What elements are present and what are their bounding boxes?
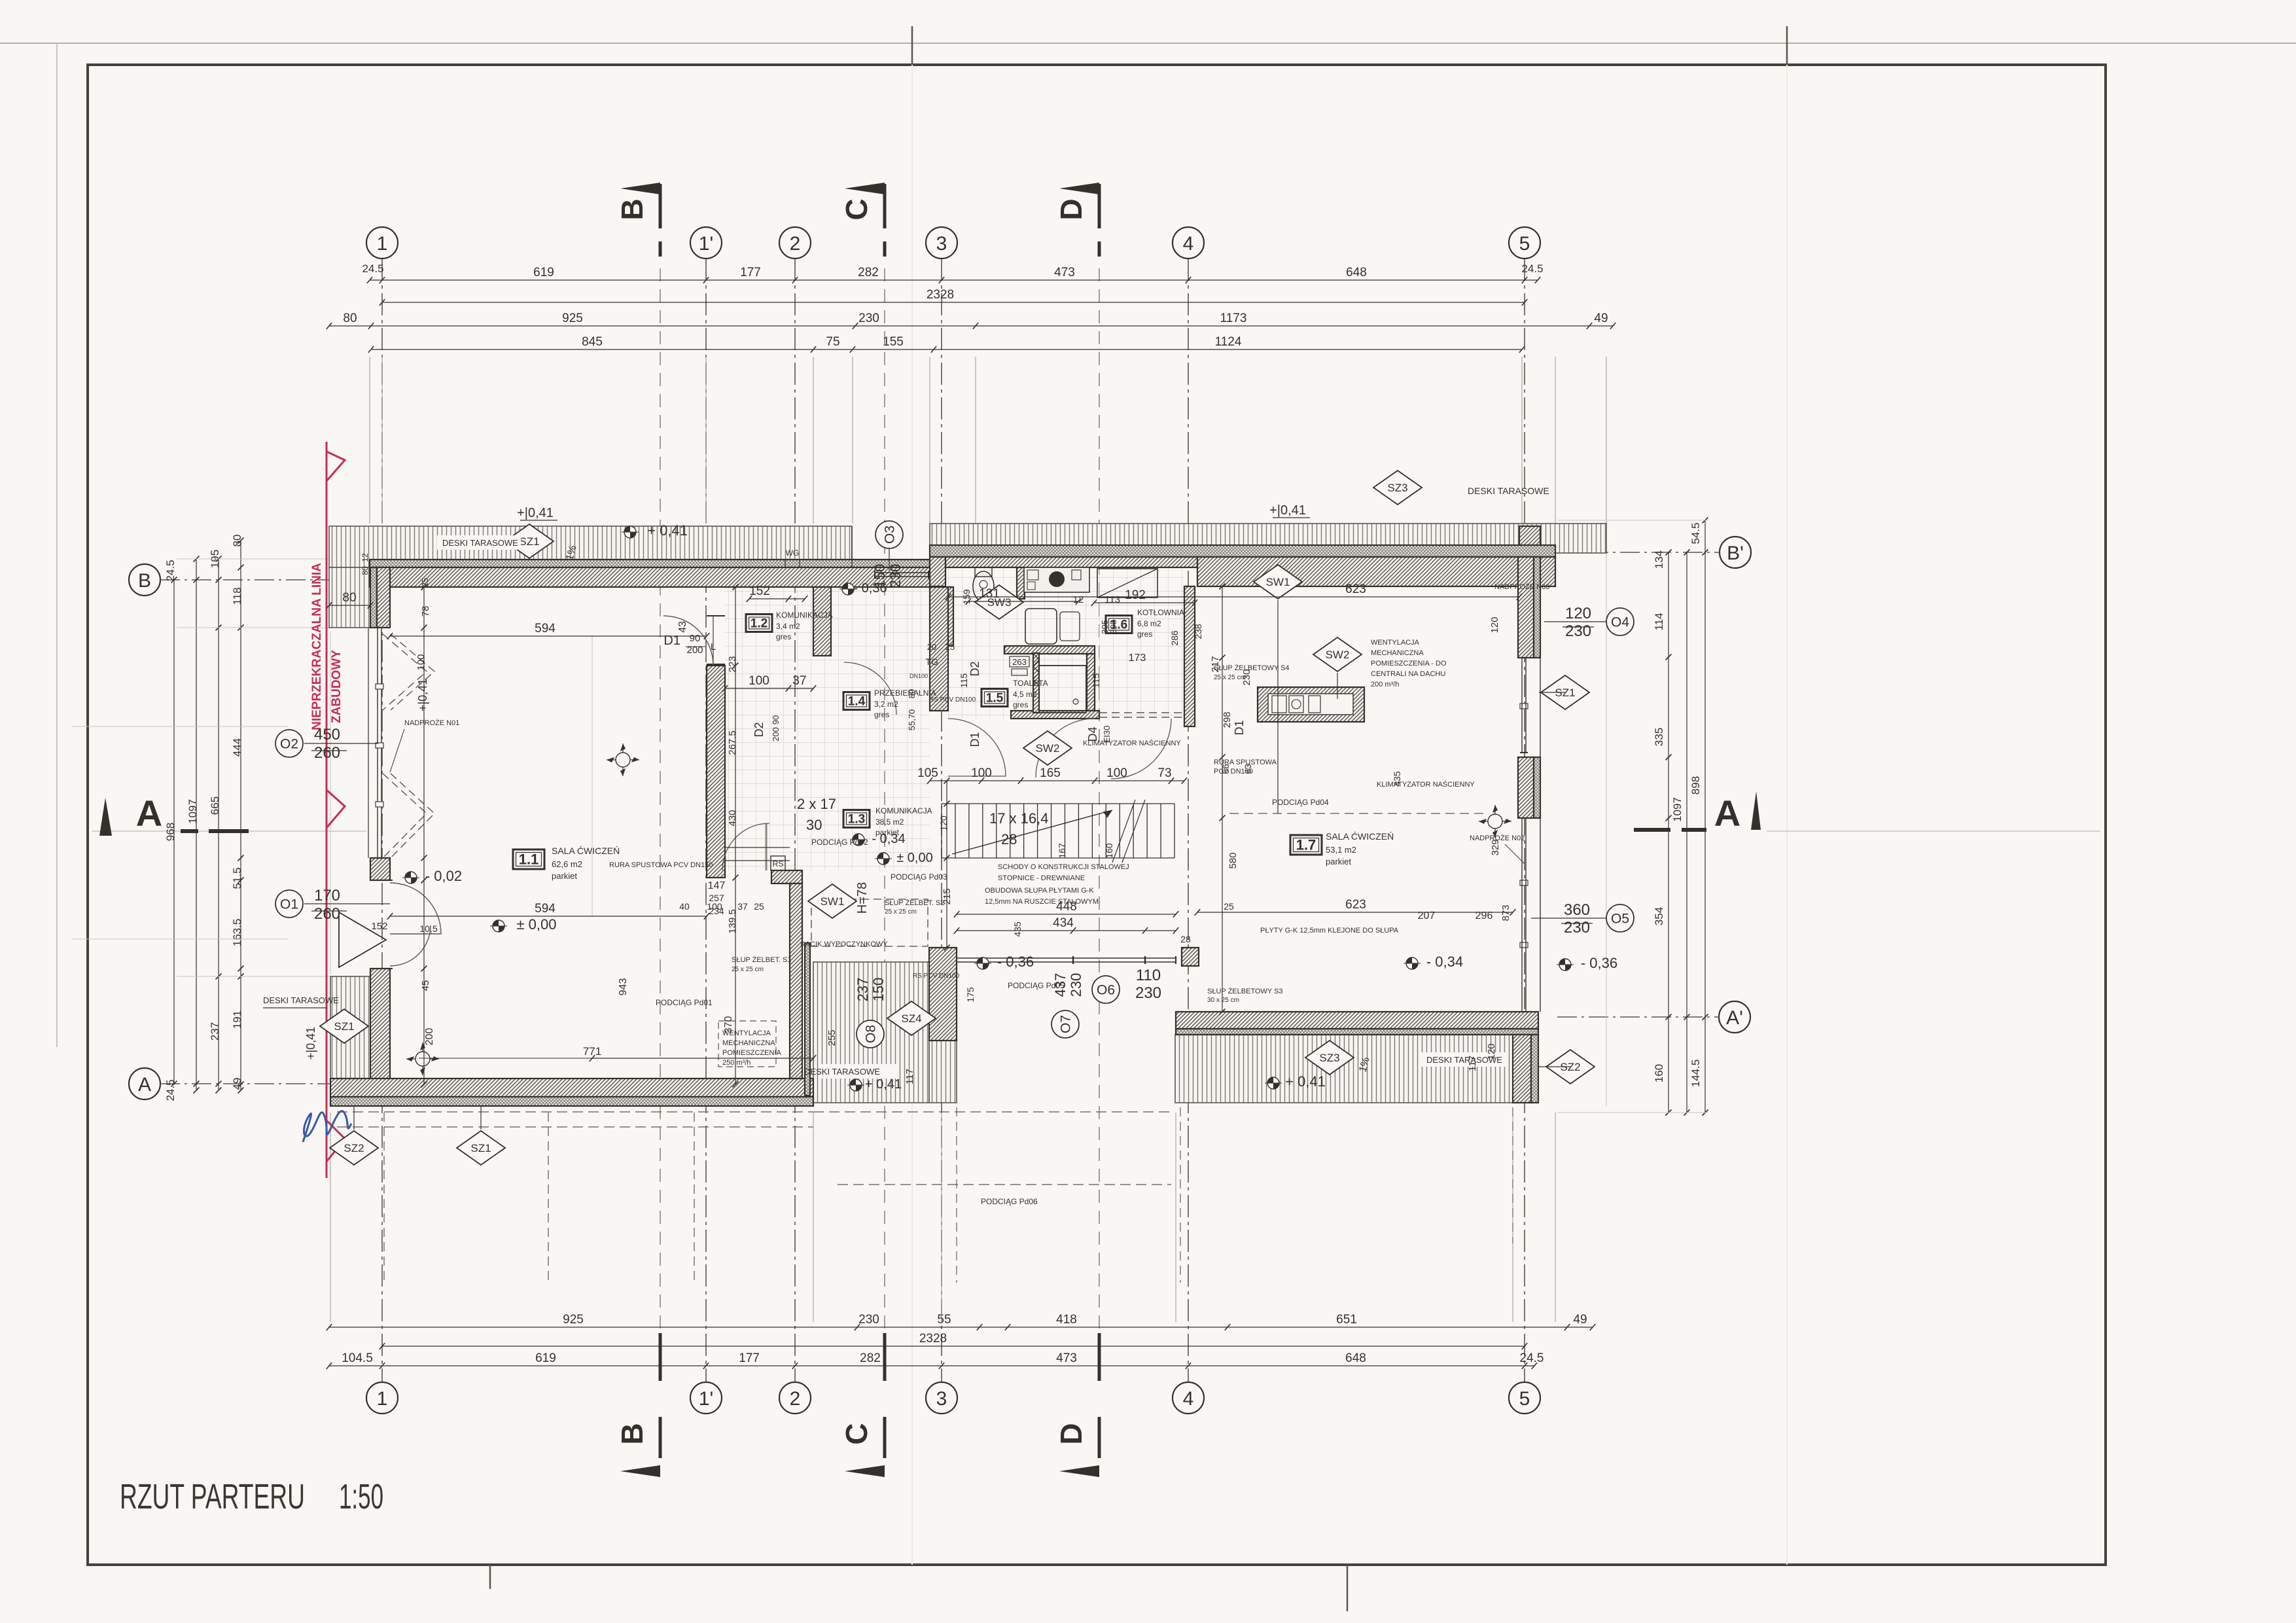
svg-text:175: 175 <box>965 987 976 1003</box>
svg-text:37: 37 <box>792 674 806 688</box>
svg-text:234: 234 <box>709 906 724 916</box>
svg-text:SZ3: SZ3 <box>1319 1052 1339 1064</box>
svg-text:SŁUP ŻELBETOWY S3: SŁUP ŻELBETOWY S3 <box>1207 987 1283 995</box>
svg-text:ZABUDOWY: ZABUDOWY <box>330 650 344 723</box>
svg-text:EI30: EI30 <box>1102 726 1112 743</box>
svg-text:2 x 17: 2 x 17 <box>797 796 836 812</box>
svg-text:230: 230 <box>1068 973 1084 997</box>
svg-text:SW2: SW2 <box>1036 742 1060 755</box>
svg-text:298: 298 <box>1222 711 1233 728</box>
svg-text:430: 430 <box>727 810 738 826</box>
svg-text:120: 120 <box>938 815 949 831</box>
svg-text:parkiet: parkiet <box>552 871 577 881</box>
svg-text:360: 360 <box>1564 901 1590 919</box>
svg-text:308: 308 <box>1108 620 1118 634</box>
svg-text:WG: WG <box>786 548 800 558</box>
svg-text:RS PCV DN100: RS PCV DN100 <box>913 972 960 980</box>
svg-text:335: 335 <box>1653 728 1665 746</box>
svg-text:167: 167 <box>1057 843 1067 859</box>
svg-text:78: 78 <box>420 606 431 617</box>
svg-text:PODCIĄG Pd06: PODCIĄG Pd06 <box>981 1197 1038 1206</box>
svg-text:5: 5 <box>1519 233 1530 255</box>
svg-text:POMIESZCZENIA - DO: POMIESZCZENIA - DO <box>1371 660 1447 668</box>
svg-text:925: 925 <box>562 312 583 325</box>
svg-text:117: 117 <box>1467 1056 1478 1071</box>
svg-text:10,5: 10,5 <box>419 923 437 934</box>
svg-text:SW1: SW1 <box>1266 576 1290 588</box>
svg-text:KĄCIK WYPOCZYNKOWY: KĄCIK WYPOCZYNKOWY <box>800 940 888 948</box>
svg-text:D1: D1 <box>1233 720 1246 735</box>
svg-text:KOMUNIKACJA: KOMUNIKACJA <box>776 611 833 620</box>
svg-text:62,6 m2: 62,6 m2 <box>552 859 582 869</box>
svg-text:D1: D1 <box>663 633 680 648</box>
svg-text:968: 968 <box>164 823 177 841</box>
svg-text:110: 110 <box>1136 967 1161 984</box>
svg-text:354: 354 <box>1653 907 1665 925</box>
svg-text:238: 238 <box>1193 624 1203 639</box>
svg-text:38,5 m2: 38,5 m2 <box>875 817 904 827</box>
svg-text:51.5: 51.5 <box>231 867 243 889</box>
svg-text:SZ3: SZ3 <box>1387 482 1407 494</box>
svg-text:165: 165 <box>1040 766 1061 780</box>
svg-text:O2: O2 <box>280 737 298 752</box>
svg-text:237: 237 <box>855 978 871 1002</box>
svg-text:O6: O6 <box>1097 983 1115 998</box>
svg-text:12: 12 <box>361 553 370 562</box>
svg-text:115: 115 <box>1091 673 1101 688</box>
svg-text:C: C <box>839 198 874 220</box>
svg-text:3,4 m2: 3,4 m2 <box>776 622 800 631</box>
svg-text:L: L <box>711 641 716 652</box>
svg-text:80: 80 <box>231 535 243 547</box>
svg-text:448: 448 <box>1056 900 1077 914</box>
svg-text:53,1 m2: 53,1 m2 <box>1326 845 1356 855</box>
svg-text:RS: RS <box>773 859 784 868</box>
svg-text:117: 117 <box>904 1069 915 1084</box>
svg-text:473: 473 <box>1054 266 1075 279</box>
svg-text:619: 619 <box>535 1351 556 1365</box>
svg-text:H=78: H=78 <box>855 882 870 914</box>
svg-text:230: 230 <box>1565 622 1591 640</box>
svg-text:B: B <box>615 1423 649 1444</box>
svg-text:296: 296 <box>1475 910 1493 921</box>
svg-text:2: 2 <box>790 1388 801 1410</box>
svg-text:A: A <box>1714 793 1740 834</box>
svg-text:12: 12 <box>1073 594 1084 605</box>
svg-text:C: C <box>839 1423 874 1444</box>
svg-text:80: 80 <box>361 566 370 575</box>
svg-text:263: 263 <box>1012 657 1027 667</box>
svg-text:173: 173 <box>1129 652 1146 664</box>
svg-text:651: 651 <box>1336 1313 1357 1327</box>
svg-text:SZ2: SZ2 <box>344 1142 364 1154</box>
svg-text:SCHODY O KONSTRUKCJI STALOWEJ: SCHODY O KONSTRUKCJI STALOWEJ <box>998 863 1129 871</box>
svg-text:SW1: SW1 <box>821 895 845 908</box>
svg-text:NIEPRZEKRACZALNA LINIA: NIEPRZEKRACZALNA LINIA <box>310 563 324 730</box>
svg-text:100: 100 <box>971 766 992 780</box>
svg-text:+ 0,41: + 0,41 <box>865 1077 902 1092</box>
svg-text:O4: O4 <box>1611 615 1629 630</box>
svg-text:580: 580 <box>1227 852 1239 868</box>
svg-text:286: 286 <box>1169 630 1180 646</box>
svg-text:120: 120 <box>1486 1043 1497 1060</box>
svg-text:4: 4 <box>1183 1388 1194 1410</box>
svg-text:49: 49 <box>231 1078 243 1090</box>
svg-text:434: 434 <box>1053 916 1074 930</box>
svg-text:623: 623 <box>1345 898 1366 912</box>
svg-text:3: 3 <box>936 233 947 255</box>
svg-text:parkiet: parkiet <box>875 828 900 837</box>
svg-text:A: A <box>138 1074 151 1096</box>
svg-text:STOPNICE - DREWNIANE: STOPNICE - DREWNIANE <box>998 874 1085 882</box>
svg-text:113: 113 <box>1104 594 1120 605</box>
svg-text:DESKI TARASOWE: DESKI TARASOWE <box>1468 486 1549 496</box>
svg-text:594: 594 <box>535 622 556 635</box>
svg-text:80: 80 <box>343 312 357 325</box>
svg-text:159: 159 <box>961 589 972 605</box>
svg-text:329: 329 <box>1490 839 1501 855</box>
svg-text:1: 1 <box>377 1388 388 1410</box>
svg-text:25: 25 <box>945 642 955 652</box>
svg-text:TG: TG <box>925 656 938 667</box>
svg-text:80: 80 <box>342 591 356 605</box>
svg-text:90: 90 <box>690 633 701 644</box>
svg-text:49: 49 <box>1573 1313 1587 1327</box>
svg-text:152: 152 <box>749 584 770 598</box>
svg-text:230: 230 <box>1241 669 1252 685</box>
svg-text:450: 450 <box>314 726 340 743</box>
svg-text:267.5: 267.5 <box>727 730 738 755</box>
svg-text:898: 898 <box>1689 776 1702 794</box>
svg-text:160: 160 <box>1104 843 1114 859</box>
svg-text:147: 147 <box>708 880 726 891</box>
svg-text:SZ1: SZ1 <box>470 1142 491 1154</box>
svg-text:255: 255 <box>826 1029 838 1046</box>
svg-text:40: 40 <box>679 901 690 912</box>
svg-text:B': B' <box>1727 543 1744 564</box>
svg-text:+ 0,41: + 0,41 <box>647 522 688 539</box>
svg-text:619: 619 <box>533 266 554 279</box>
svg-text:24.5: 24.5 <box>164 560 177 581</box>
svg-text:POMIESZCZENIA: POMIESZCZENIA <box>722 1049 782 1057</box>
svg-text:D2: D2 <box>968 661 981 676</box>
svg-text:NADPROŻE N01: NADPROŻE N01 <box>404 719 459 727</box>
svg-text:PODCIĄG Pd02: PODCIĄG Pd02 <box>811 838 868 847</box>
svg-text:56: 56 <box>1220 764 1231 774</box>
svg-text:SŁUP ŻELBET. S1: SŁUP ŻELBET. S1 <box>732 955 792 964</box>
svg-text:PODCIĄG Pd04: PODCIĄG Pd04 <box>1272 798 1329 807</box>
svg-text:100: 100 <box>415 654 427 670</box>
svg-text:+|0,41: +|0,41 <box>517 506 554 520</box>
svg-text:55,70: 55,70 <box>907 709 917 731</box>
svg-text:28: 28 <box>1001 831 1017 847</box>
svg-text:O5: O5 <box>1611 912 1629 927</box>
svg-text:163.5: 163.5 <box>231 919 243 947</box>
svg-text:PŁYTY G-K 12,5mm KLEJONE DO SŁ: PŁYTY G-K 12,5mm KLEJONE DO SŁUPA <box>1260 927 1399 935</box>
svg-text:WENTYLACJA: WENTYLACJA <box>1371 639 1420 647</box>
svg-text:RZUT PARTERU: RZUT PARTERU <box>120 1477 305 1516</box>
svg-text:4: 4 <box>1183 233 1194 255</box>
svg-text:24.5: 24.5 <box>362 262 383 275</box>
svg-text:118: 118 <box>231 587 243 605</box>
svg-text:160: 160 <box>1653 1064 1665 1082</box>
svg-text:115: 115 <box>959 673 969 688</box>
svg-text:925: 925 <box>563 1313 584 1327</box>
svg-text:O3: O3 <box>883 526 898 544</box>
svg-text:KOMUNIKACJA: KOMUNIKACJA <box>875 806 932 815</box>
svg-text:± 0,00: ± 0,00 <box>516 916 556 933</box>
svg-text:144.5: 144.5 <box>1689 1060 1702 1088</box>
svg-text:230: 230 <box>1135 984 1161 1002</box>
svg-text:1.1: 1.1 <box>519 851 539 868</box>
svg-text:177: 177 <box>740 266 761 279</box>
svg-text:DESKI TARASOWE: DESKI TARASOWE <box>442 538 518 548</box>
svg-text:SZ1: SZ1 <box>519 535 539 548</box>
svg-text:594: 594 <box>535 902 556 916</box>
svg-text:134: 134 <box>1653 550 1665 569</box>
svg-text:648: 648 <box>1346 266 1367 279</box>
svg-text:25: 25 <box>754 901 764 912</box>
svg-text:260: 260 <box>314 744 340 762</box>
svg-text:PODCIĄG Pd01: PODCIĄG Pd01 <box>656 998 713 1007</box>
svg-text:A: A <box>136 793 162 834</box>
svg-text:D2: D2 <box>752 722 766 737</box>
svg-text:1:50: 1:50 <box>339 1477 383 1516</box>
svg-text:SALA ĆWICZEŃ: SALA ĆWICZEŃ <box>552 846 620 856</box>
svg-text:± 0,00: ± 0,00 <box>896 851 932 865</box>
svg-text:139.5: 139.5 <box>727 909 738 934</box>
svg-text:55: 55 <box>937 1313 951 1327</box>
svg-text:1.5: 1.5 <box>986 692 1004 705</box>
svg-text:D: D <box>1054 198 1088 220</box>
svg-text:665: 665 <box>209 796 221 815</box>
svg-text:- 0,02: - 0,02 <box>425 868 462 884</box>
svg-text:1.3: 1.3 <box>848 813 865 827</box>
svg-text:- 0,36: - 0,36 <box>997 954 1034 970</box>
svg-text:SZ4: SZ4 <box>901 1012 921 1025</box>
svg-text:2328: 2328 <box>927 288 954 302</box>
svg-text:1.4: 1.4 <box>848 695 866 709</box>
svg-text:370: 370 <box>723 1016 734 1034</box>
svg-text:63: 63 <box>1243 764 1253 774</box>
svg-text:SŁUP ŻELBET. S2: SŁUP ŻELBET. S2 <box>885 899 945 907</box>
svg-text:1.2: 1.2 <box>751 617 768 631</box>
svg-text:1': 1' <box>699 233 713 255</box>
svg-text:PODCIĄG Pd03: PODCIĄG Pd03 <box>891 872 947 882</box>
svg-text:237: 237 <box>209 1022 221 1041</box>
svg-text:200: 200 <box>771 727 781 741</box>
svg-text:215: 215 <box>942 888 953 904</box>
svg-text:- 0,36: - 0,36 <box>1581 955 1617 971</box>
svg-text:170: 170 <box>314 887 340 904</box>
svg-text:25: 25 <box>1224 901 1234 912</box>
svg-text:230: 230 <box>858 312 879 325</box>
svg-text:54.5: 54.5 <box>1689 522 1702 544</box>
svg-text:O8: O8 <box>864 1025 879 1043</box>
svg-text:SALA ĆWICZEŃ: SALA ĆWICZEŃ <box>1326 831 1394 842</box>
svg-text:PRZEBIERALNIA: PRZEBIERALNIA <box>874 688 936 698</box>
svg-text:192: 192 <box>1125 588 1146 602</box>
svg-text:200 m³/h: 200 m³/h <box>1371 681 1399 688</box>
svg-text:SZ2: SZ2 <box>1560 1061 1580 1073</box>
svg-text:1097: 1097 <box>186 799 199 824</box>
svg-text:282: 282 <box>858 266 879 279</box>
svg-text:DESKI TARASOWE: DESKI TARASOWE <box>263 995 339 1005</box>
svg-text:104.5: 104.5 <box>342 1351 373 1365</box>
svg-text:30: 30 <box>806 817 822 833</box>
svg-text:80: 80 <box>907 689 917 698</box>
svg-text:1': 1' <box>699 1388 713 1410</box>
svg-text:DESKI TARASOWE: DESKI TARASOWE <box>804 1067 880 1077</box>
svg-text:25 x 25 cm: 25 x 25 cm <box>885 908 917 916</box>
svg-text:100: 100 <box>749 674 769 688</box>
svg-text:PODCIĄG Pd05: PODCIĄG Pd05 <box>1008 981 1065 990</box>
svg-text:CENTRALI NA DACHU: CENTRALI NA DACHU <box>1371 670 1445 678</box>
svg-text:45: 45 <box>420 980 431 991</box>
svg-text:435: 435 <box>1392 771 1402 787</box>
svg-text:473: 473 <box>1056 1351 1077 1365</box>
svg-text:623: 623 <box>1345 582 1366 596</box>
svg-text:207: 207 <box>1418 910 1436 921</box>
svg-text:257: 257 <box>709 893 724 903</box>
svg-text:gres: gres <box>1013 700 1028 709</box>
svg-text:49: 49 <box>1594 312 1608 325</box>
svg-text:155: 155 <box>883 335 904 349</box>
svg-text:260: 260 <box>314 905 340 923</box>
svg-text:MECHANICZNA: MECHANICZNA <box>722 1039 775 1047</box>
svg-text:24.5: 24.5 <box>164 1079 177 1101</box>
svg-text:282: 282 <box>860 1351 881 1365</box>
svg-text:+|0,41: +|0,41 <box>304 1027 317 1060</box>
svg-text:250 m³/h: 250 m³/h <box>722 1059 751 1067</box>
svg-text:2: 2 <box>790 233 801 255</box>
svg-text:191: 191 <box>231 1010 243 1029</box>
svg-text:152: 152 <box>371 921 387 932</box>
svg-text:20: 20 <box>927 642 936 652</box>
svg-text:230: 230 <box>887 564 904 588</box>
svg-text:17 x 16,4: 17 x 16,4 <box>989 810 1049 827</box>
svg-text:SZ1: SZ1 <box>1555 687 1575 699</box>
svg-text:MECHANICZNA: MECHANICZNA <box>1371 649 1424 657</box>
svg-text:D4: D4 <box>1086 726 1099 741</box>
svg-text:1.7: 1.7 <box>1296 837 1316 853</box>
svg-text:200: 200 <box>424 1028 435 1046</box>
svg-text:120: 120 <box>1565 605 1591 622</box>
svg-text:DN100: DN100 <box>910 673 928 679</box>
svg-text:2328: 2328 <box>919 1332 947 1346</box>
svg-text:75: 75 <box>826 335 839 349</box>
svg-text:1097: 1097 <box>1671 797 1684 822</box>
svg-text:6,8 m2: 6,8 m2 <box>1137 619 1161 628</box>
svg-text:1173: 1173 <box>1220 312 1247 325</box>
svg-text:gres: gres <box>874 710 889 719</box>
svg-text:90: 90 <box>771 715 781 724</box>
svg-text:SZ1: SZ1 <box>334 1020 354 1033</box>
svg-text:177: 177 <box>739 1351 760 1365</box>
svg-text:KOTŁOWNIA: KOTŁOWNIA <box>1137 608 1184 617</box>
svg-text:105: 105 <box>917 766 938 780</box>
svg-text:parkiet: parkiet <box>1326 857 1351 866</box>
svg-text:100: 100 <box>1106 766 1127 780</box>
svg-text:D: D <box>1054 1423 1088 1444</box>
svg-text:5: 5 <box>1519 1388 1530 1410</box>
svg-text:114: 114 <box>1653 613 1665 630</box>
svg-text:230: 230 <box>1564 919 1590 936</box>
svg-text:24.5: 24.5 <box>1521 262 1543 275</box>
svg-text:SW2: SW2 <box>1326 649 1350 661</box>
svg-text:648: 648 <box>1345 1351 1366 1365</box>
svg-text:943: 943 <box>618 978 629 996</box>
svg-text:RURA SPUSTOWA PCV DN150: RURA SPUSTOWA PCV DN150 <box>609 861 713 869</box>
svg-text:150: 150 <box>872 564 888 588</box>
svg-text:- 0,34: - 0,34 <box>1426 954 1463 970</box>
svg-text:120: 120 <box>1489 616 1500 633</box>
svg-text:845: 845 <box>582 335 603 349</box>
svg-text:NADPROŻE N03: NADPROŻE N03 <box>1494 582 1549 591</box>
svg-text:30 x 25 cm: 30 x 25 cm <box>1207 997 1239 1004</box>
svg-text:+|0,41: +|0,41 <box>416 679 429 711</box>
svg-text:+|0,41: +|0,41 <box>1269 503 1306 518</box>
svg-text:B: B <box>615 198 649 220</box>
svg-text:O7: O7 <box>1059 1015 1074 1033</box>
svg-text:12,5mm NA RUSZCIE STALOWYM: 12,5mm NA RUSZCIE STALOWYM <box>985 898 1099 906</box>
svg-text:24.5: 24.5 <box>1520 1351 1544 1365</box>
svg-text:3,2 m2: 3,2 m2 <box>874 700 898 709</box>
svg-text:771: 771 <box>583 1045 601 1058</box>
svg-text:223: 223 <box>727 656 738 672</box>
svg-text:25: 25 <box>420 578 430 587</box>
svg-text:444: 444 <box>231 738 243 757</box>
svg-text:1124: 1124 <box>1215 335 1242 349</box>
svg-text:+ 0,41: + 0,41 <box>1285 1073 1326 1090</box>
svg-text:25 x 25 cm: 25 x 25 cm <box>732 966 764 973</box>
svg-text:B: B <box>138 570 151 592</box>
svg-text:A': A' <box>1726 1007 1743 1029</box>
svg-text:O1: O1 <box>280 897 298 912</box>
svg-text:D1: D1 <box>968 732 981 747</box>
svg-text:435: 435 <box>1012 921 1023 937</box>
svg-text:43: 43 <box>677 621 688 633</box>
svg-text:73: 73 <box>1157 766 1171 780</box>
svg-text:gres: gres <box>1137 630 1152 639</box>
svg-text:131: 131 <box>979 587 1000 601</box>
svg-text:1: 1 <box>377 233 388 255</box>
svg-text:150: 150 <box>870 978 887 1002</box>
svg-text:RS PCV DN100: RS PCV DN100 <box>929 696 976 704</box>
svg-text:28: 28 <box>1180 934 1191 944</box>
svg-text:TOALETA: TOALETA <box>1013 679 1048 688</box>
svg-text:3: 3 <box>936 1388 947 1410</box>
svg-text:418: 418 <box>1056 1313 1077 1327</box>
svg-text:37: 37 <box>737 901 748 912</box>
svg-text:4,5 m2: 4,5 m2 <box>1013 690 1037 699</box>
svg-text:217: 217 <box>1210 656 1221 672</box>
svg-text:gres: gres <box>776 632 791 641</box>
svg-text:230: 230 <box>858 1313 879 1327</box>
svg-text:873: 873 <box>1500 904 1511 921</box>
svg-text:OBUDOWA SŁUPA PŁYTAMI G-K: OBUDOWA SŁUPA PŁYTAMI G-K <box>985 887 1094 895</box>
